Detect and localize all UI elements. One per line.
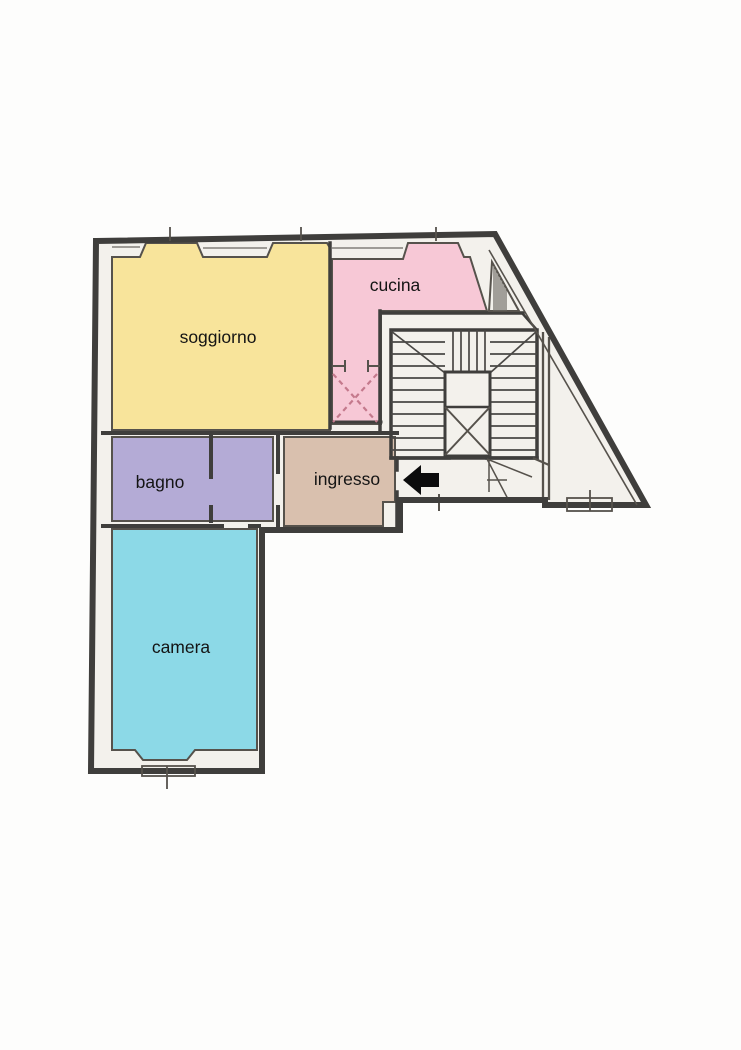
label-camera: camera (152, 637, 211, 657)
floor-plan-page: soggiorno cucina bagno ingresso camera (0, 0, 741, 1050)
label-ingresso: ingresso (314, 469, 380, 489)
floor-plan-drawing: soggiorno cucina bagno ingresso camera (0, 0, 741, 1050)
label-bagno: bagno (136, 472, 185, 492)
label-soggiorno: soggiorno (180, 327, 257, 347)
label-cucina: cucina (370, 275, 421, 295)
